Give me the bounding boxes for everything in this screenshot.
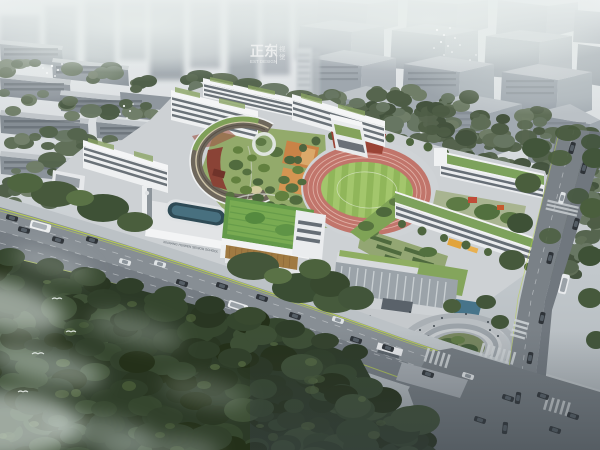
svg-text:EST DESIGN: EST DESIGN — [250, 59, 277, 64]
svg-text:正东: 正东 — [250, 43, 278, 59]
svg-text:视: 视 — [279, 44, 286, 53]
svg-text:觉: 觉 — [279, 52, 286, 61]
